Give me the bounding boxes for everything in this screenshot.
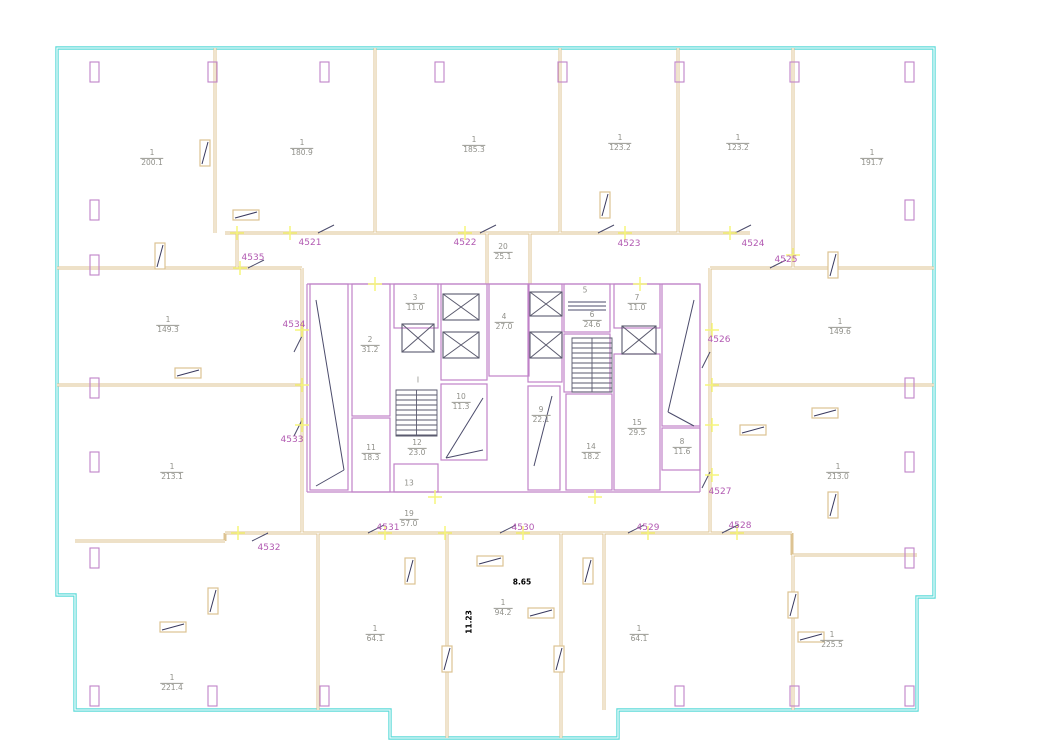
room-area: 64.1 [366,634,385,644]
room-area: 94.2 [494,608,513,618]
room-area: 200.1 [140,158,163,168]
room-area: 18.3 [362,453,381,463]
room-area-label: 311.0 [406,294,425,312]
room-area-label: 1123.2 [726,134,749,152]
room-number: 1 [160,674,183,683]
room-area: 23.0 [408,448,427,458]
room-area-label: 1529.5 [628,419,647,437]
dimension-label: 8.65 [513,578,532,587]
room-number: 1 [140,149,163,158]
room-number: 1 [462,136,485,145]
room-area: 191.7 [860,158,883,168]
room-area: 11.6 [673,447,692,457]
room-area: 123.2 [608,143,631,153]
room-area: 27.0 [495,322,514,332]
room-area: 11.0 [628,303,647,313]
room-area-label: 194.2 [494,599,513,617]
room-area: 57.0 [400,519,419,529]
room-number: 1 [494,599,513,608]
room-area: 213.1 [160,472,183,482]
unit-number-label: 4528 [729,521,752,531]
room-area-label: 1191.7 [860,149,883,167]
room-number: 1 [608,134,631,143]
room-number: 1 [290,139,313,148]
room-number: 1 [630,625,649,634]
unit-number-label: 4533 [281,435,304,445]
room-area-label: 1200.1 [140,149,163,167]
room-area: 29.5 [628,428,647,438]
room-number: 3 [406,294,425,303]
room-area: 225.5 [820,640,843,650]
room-number: 4 [495,313,514,322]
room-number: 19 [400,510,419,519]
room-area: 213.0 [826,472,849,482]
unit-number-label: 4527 [709,487,732,497]
room-area-label: 1149.6 [828,318,851,336]
dimension-label: 11.23 [465,610,474,634]
room-area-label: 624.6 [583,311,602,329]
room-area-label: 2025.1 [494,243,513,261]
room-area-label: 1011.3 [452,393,471,411]
room-area-label: 164.1 [630,625,649,643]
unit-number-label: 4521 [299,238,322,248]
room-area-label: 811.6 [673,438,692,456]
room-area-label: 1957.0 [400,510,419,528]
room-number: 1 [828,318,851,327]
room-number: 1 [726,134,749,143]
room-number: 1 [826,463,849,472]
room-number: 7 [628,294,647,303]
unit-number-label: 4530 [512,523,535,533]
unit-number-label: 4535 [242,253,265,263]
room-area: 18.2 [582,452,601,462]
room-area: 221.4 [160,683,183,693]
room-area: 149.6 [828,327,851,337]
room-area: 24.6 [583,320,602,330]
room-area: 11.0 [406,303,425,313]
unit-number-label: 4524 [742,239,765,249]
room-number: 14 [582,443,601,452]
room-number: 2 [361,336,380,345]
room-area: 31.2 [361,345,380,355]
room-area: 185.3 [462,145,485,155]
room-area-label: 1213.0 [826,463,849,481]
room-number: 1 [156,316,179,325]
floorplan-canvas: 1200.11180.91185.31123.21123.21191.72025… [0,0,1042,753]
room-area: 22.1 [532,415,551,425]
room-area-label: 1223.0 [408,439,427,457]
room-area-label: 1185.3 [462,136,485,154]
unit-number-label: 4525 [775,255,798,265]
room-number: 10 [452,393,471,402]
room-area-label: 231.2 [361,336,380,354]
room-number: 1 [366,625,385,634]
room-area: 11.3 [452,402,471,412]
room-area-label: 1123.2 [608,134,631,152]
unit-number-label: 4523 [618,239,641,249]
room-area-label: 711.0 [628,294,647,312]
room-area: 149.3 [156,325,179,335]
unit-number-label: 4522 [454,238,477,248]
room-area-label: 164.1 [366,625,385,643]
room-area-label: 1118.3 [362,444,381,462]
room-number: 20 [494,243,513,252]
room-area-label: 922.1 [532,406,551,424]
unit-number-label: 4534 [283,320,306,330]
room-number: 6 [583,311,602,320]
room-area-label: 1221.4 [160,674,183,692]
room-number: 12 [408,439,427,448]
room-number: 1 [160,463,183,472]
room-number: 1 [820,631,843,640]
room-area-label: 1225.5 [820,631,843,649]
room-number: 8 [673,438,692,447]
room-mark-label: I [417,376,419,385]
room-area-label: 1149.3 [156,316,179,334]
room-number: 9 [532,406,551,415]
room-area-label: 427.0 [495,313,514,331]
unit-number-label: 4531 [377,523,400,533]
unit-number-label: 4526 [708,335,731,345]
room-area-label: 1213.1 [160,463,183,481]
room-number: 15 [628,419,647,428]
room-number: 1 [860,149,883,158]
room-number: 11 [362,444,381,453]
room-area: 123.2 [726,143,749,153]
unit-number-label: 4529 [637,523,660,533]
room-mark-label: 13 [404,479,414,488]
room-mark-label: 5 [583,286,588,295]
room-area: 64.1 [630,634,649,644]
room-area-label: 1418.2 [582,443,601,461]
room-area: 180.9 [290,148,313,158]
room-area: 25.1 [494,252,513,262]
room-area-label: 1180.9 [290,139,313,157]
unit-number-label: 4532 [258,543,281,553]
label-layer: 1200.11180.91185.31123.21123.21191.72025… [0,0,1042,753]
